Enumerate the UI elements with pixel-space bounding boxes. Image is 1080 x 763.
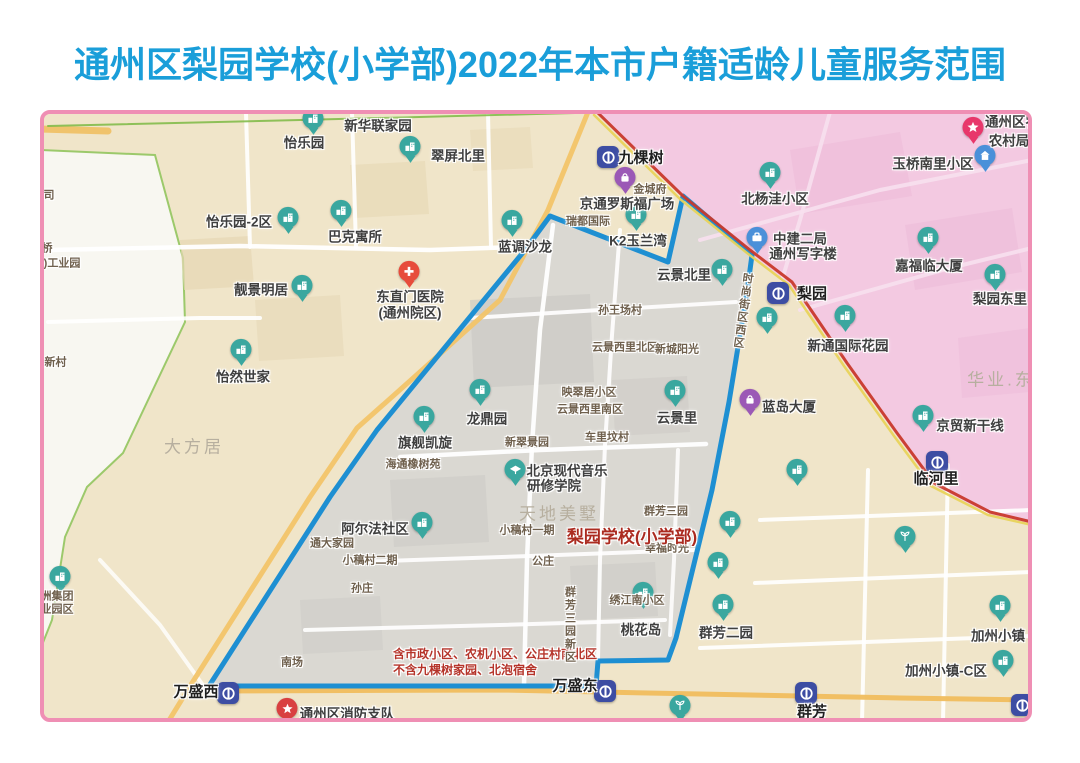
- pin-tail: [236, 359, 246, 366]
- map-label: K2玉兰湾: [609, 234, 667, 248]
- map-label: 南场: [281, 658, 303, 669]
- map-label: 东直门医院: [376, 290, 444, 304]
- map-label: 大方居: [164, 439, 224, 456]
- map-label: 临河里: [913, 472, 958, 487]
- map-label: 加州小镇-C区: [905, 664, 987, 678]
- jiukeshu-station: [597, 146, 619, 168]
- qunfang-station: [795, 682, 817, 704]
- residence-poi-icon: [412, 512, 433, 533]
- page: 通州区梨园学校(小学部)2022年本市户籍适龄儿童服务范围 怡乐园新华联家园翠屏…: [0, 0, 1080, 763]
- pin-tail: [620, 187, 630, 194]
- map-label: 嘉福临大厦: [895, 259, 963, 273]
- residence-poi-icon: [835, 305, 856, 326]
- map-label: 绣江南小区: [610, 596, 665, 607]
- map-label: 农村局: [989, 134, 1030, 148]
- map-label: 蓝调沙龙: [498, 240, 552, 254]
- map-label: 孙庄: [351, 584, 373, 595]
- residence-poi-icon: [993, 650, 1014, 671]
- residence-poi-icon: [712, 259, 733, 280]
- pin-tail: [670, 400, 680, 407]
- residence-poi-icon: [720, 511, 741, 532]
- residence-poi-icon: [303, 110, 324, 129]
- pin-tail: [297, 295, 307, 302]
- map-label: 加州小镇: [971, 629, 1025, 643]
- pin-tail: [718, 614, 728, 621]
- pin-tail: [507, 230, 517, 237]
- map-label: 瑞都国际: [566, 217, 610, 228]
- hospital-pin-icon: [399, 261, 420, 282]
- map-label: 小稿村一期: [500, 526, 555, 537]
- map-label: 海通橡树苑: [386, 460, 441, 471]
- residence-poi-icon: [913, 405, 934, 426]
- pin-tail: [995, 615, 1005, 622]
- music-college-pin-icon: [505, 459, 526, 480]
- fire-brigade-pin-icon: [277, 698, 298, 719]
- pin-tail: [510, 479, 520, 486]
- pin-tail: [980, 165, 990, 172]
- residence-poi-icon: [400, 136, 421, 157]
- map-label: 华业.东: [967, 372, 1032, 389]
- map-label: 万盛东: [552, 679, 597, 694]
- liyuan-station: [767, 282, 789, 304]
- qunfang-new-label: 群芳三园新区: [564, 586, 575, 664]
- residence-poi-icon: [292, 275, 313, 296]
- map-label: 通州区消防支队: [300, 707, 395, 721]
- metro-station: [1011, 694, 1032, 716]
- residence-poi-icon: [50, 566, 71, 587]
- map-label: )工业园: [44, 259, 81, 270]
- map-frame: 怡乐园新华联家园翠屏北里怡乐园-2区巴克寓所蓝调沙龙靓景明居怡然世家东直门医院(…: [40, 110, 1032, 722]
- map-label: 司: [44, 191, 55, 202]
- map-label: 群芳: [797, 705, 827, 720]
- map-overlay: 怡乐园新华联家园翠屏北里怡乐园-2区巴克寓所蓝调沙龙靓景明居怡然世家东直门医院(…: [44, 114, 1028, 718]
- map-label: 新通国际花园: [808, 339, 889, 353]
- pin-tail: [765, 182, 775, 189]
- landao-mall-pin-icon: [740, 389, 761, 410]
- map-label: 研修学院: [527, 479, 581, 493]
- map-label: 映翠居小区: [562, 388, 617, 399]
- page-title: 通州区梨园学校(小学部)2022年本市户籍适龄儿童服务范围: [0, 36, 1080, 88]
- map-label: 北杨洼小区: [741, 192, 809, 206]
- street-block-label: 时尚街区西区: [731, 272, 753, 351]
- service-note-line2: 不含九棵树家园、北泡宿舍: [393, 664, 537, 676]
- residence-poi-icon: [502, 210, 523, 231]
- map-label: 阿尔法社区: [341, 522, 409, 536]
- map-label: 公庄: [532, 557, 554, 568]
- residence-poi-icon: [231, 339, 252, 360]
- map-label: 梨园: [797, 287, 827, 302]
- pin-tail: [998, 670, 1008, 677]
- map-label: 云景里: [657, 411, 698, 425]
- map-label: 通州区农: [985, 115, 1032, 129]
- map-label: 桥: [42, 244, 53, 255]
- map-label: 云景西里南区: [557, 405, 623, 416]
- map-label: 云景西里北区: [592, 343, 658, 354]
- map-label: 怡乐园-2区: [206, 215, 272, 229]
- school-name-label: 梨园学校(小学部): [567, 529, 697, 546]
- map-label: 怡乐园: [284, 136, 325, 150]
- map-label: 洲集团: [41, 592, 74, 603]
- map-label: 金城府: [634, 185, 667, 196]
- pin-tail: [675, 715, 685, 722]
- pin-tail: [717, 279, 727, 286]
- map-label: 业园区: [41, 605, 74, 616]
- pin-tail: [283, 227, 293, 234]
- residence-poi-icon: [470, 379, 491, 400]
- residence-poi-icon: [665, 380, 686, 401]
- residence-poi-icon: [713, 594, 734, 615]
- residence-poi-icon: [757, 307, 778, 328]
- map-label: 旗舰凯旋: [398, 436, 452, 450]
- pin-tail: [404, 281, 414, 288]
- map-label: 桃花岛: [621, 623, 662, 637]
- map-label: 新城阳光: [655, 345, 699, 356]
- map-label: 群芳二园: [699, 626, 753, 640]
- map-label: 旦新村: [40, 358, 67, 369]
- pin-tail: [419, 426, 429, 433]
- pin-tail: [745, 409, 755, 416]
- map-label: 京通罗斯福广场: [580, 197, 675, 211]
- plant-poi-icon: [670, 695, 691, 716]
- pin-tail: [308, 128, 318, 135]
- pin-tail: [762, 327, 772, 334]
- pin-tail: [840, 325, 850, 332]
- map-label: 车里坟村: [585, 433, 629, 444]
- residence-poi-icon: [918, 227, 939, 248]
- pin-tail: [918, 425, 928, 432]
- map-label: 中建二局: [773, 232, 827, 246]
- jinchengfu-pin-icon: [615, 167, 636, 188]
- map-label: 云景北里: [657, 268, 711, 282]
- pin-tail: [282, 718, 292, 722]
- map-label: 怡然世家: [216, 370, 270, 384]
- residence-poi-icon: [787, 459, 808, 480]
- map-label: 通大家园: [310, 539, 354, 550]
- map-label: 龙鼎园: [467, 412, 508, 426]
- residence-poi-icon: [278, 207, 299, 228]
- residence-poi-icon: [708, 552, 729, 573]
- wanshengxi-station: [217, 682, 239, 704]
- pin-tail: [990, 284, 1000, 291]
- map-label: 九棵树: [618, 151, 663, 166]
- residence-poi-icon: [985, 264, 1006, 285]
- pin-tail: [900, 546, 910, 553]
- pin-tail: [752, 247, 762, 254]
- map-label: 玉桥南里小区: [893, 157, 974, 171]
- map-label: 梨园东里: [973, 292, 1027, 306]
- map-label: 蓝岛大厦: [762, 400, 816, 414]
- pin-tail: [405, 156, 415, 163]
- map-label: 北京现代音乐: [527, 464, 608, 478]
- map-label: 翠屏北里: [431, 149, 485, 163]
- map-label: 天地美墅: [519, 506, 599, 523]
- residence-poi-icon: [414, 406, 435, 427]
- residence-poi-icon: [990, 595, 1011, 616]
- map-label: 小稿村二期: [343, 556, 398, 567]
- map-label: 巴克寓所: [328, 230, 382, 244]
- pin-tail: [417, 532, 427, 539]
- map-label: 万盛西: [173, 685, 218, 700]
- pin-tail: [713, 572, 723, 579]
- map-label: 新华联家园: [344, 119, 412, 133]
- rural-bureau-pin-icon: [963, 117, 984, 138]
- pin-tail: [923, 247, 933, 254]
- map-label: 群芳三园: [644, 507, 688, 518]
- pin-tail: [792, 479, 802, 486]
- pin-tail: [631, 224, 641, 231]
- residence-poi-icon: [760, 162, 781, 183]
- map-label: 孙王场村: [598, 306, 642, 317]
- residence-poi-icon: [331, 200, 352, 221]
- pin-tail: [336, 220, 346, 227]
- map-label: (通州院区): [379, 306, 442, 320]
- pin-tail: [968, 137, 978, 144]
- pin-tail: [475, 399, 485, 406]
- pin-tail: [725, 531, 735, 538]
- map-label: 京贸新干线: [936, 419, 1004, 433]
- zhongjian-office-pin-icon: [747, 227, 768, 248]
- map-label: 靓景明居: [234, 283, 288, 297]
- map-label: 新翠景园: [505, 438, 549, 449]
- plant-poi-icon: [895, 526, 916, 547]
- map-label: 通州写字楼: [769, 247, 837, 261]
